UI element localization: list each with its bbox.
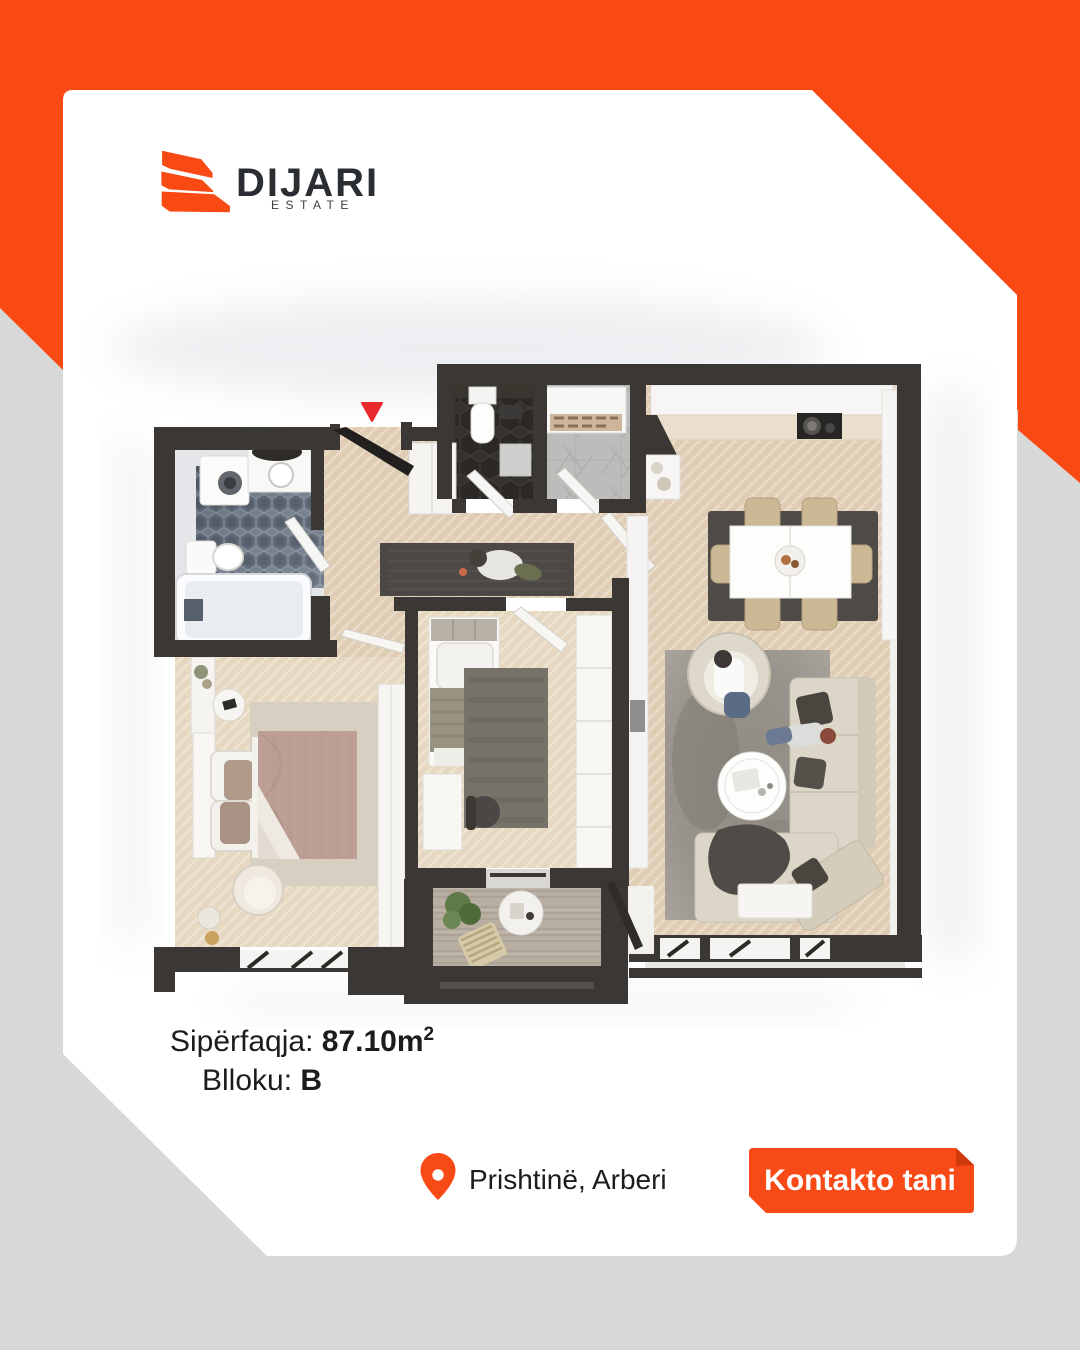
- svg-text:Blloku: B: Blloku: B: [202, 1064, 322, 1097]
- svg-text:Sipërfaqja: 87.10m2: Sipërfaqja: 87.10m2: [170, 1024, 434, 1058]
- svg-text:Prishtinë, Arberi: Prishtinë, Arberi: [469, 1164, 667, 1195]
- svg-text:ESTATE: ESTATE: [271, 198, 355, 212]
- svg-text:Kontakto tani: Kontakto tani: [764, 1164, 956, 1197]
